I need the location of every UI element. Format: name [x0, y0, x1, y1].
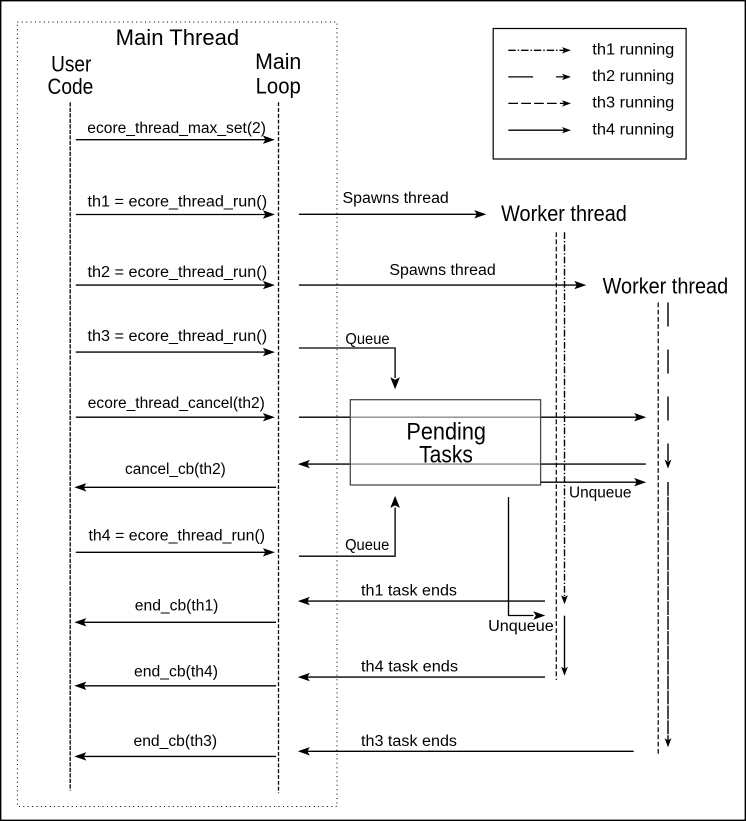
svg-text:th4 running: th4 running	[592, 122, 674, 139]
svg-text:th2 running: th2 running	[592, 68, 674, 85]
svg-text:Spawns thread: Spawns thread	[389, 262, 495, 279]
svg-text:end_cb(th3): end_cb(th3)	[134, 733, 218, 750]
svg-text:th1 = ecore_thread_run(): th1 = ecore_thread_run()	[88, 193, 268, 210]
svg-text:th3 running: th3 running	[592, 95, 674, 112]
svg-text:Tasks: Tasks	[419, 441, 473, 468]
svg-text:Unqueue: Unqueue	[569, 484, 632, 501]
svg-text:th4 task ends: th4 task ends	[361, 659, 458, 676]
svg-text:th3 = ecore_thread_run(): th3 = ecore_thread_run()	[88, 328, 268, 345]
svg-text:th1 running: th1 running	[592, 42, 674, 59]
svg-text:Queue: Queue	[345, 331, 389, 348]
svg-text:th4 = ecore_thread_run(): th4 = ecore_thread_run()	[89, 528, 266, 545]
svg-text:User: User	[51, 51, 91, 76]
svg-text:Code: Code	[48, 74, 94, 99]
svg-text:th1 task ends: th1 task ends	[361, 583, 457, 600]
svg-text:Worker thread: Worker thread	[501, 201, 627, 226]
svg-text:Main: Main	[255, 49, 301, 74]
svg-text:Loop: Loop	[256, 74, 301, 99]
svg-text:end_cb(th4): end_cb(th4)	[134, 663, 218, 680]
svg-text:cancel_cb(th2): cancel_cb(th2)	[125, 461, 226, 478]
svg-text:ecore_thread_cancel(th2): ecore_thread_cancel(th2)	[88, 395, 265, 412]
svg-text:th2 = ecore_thread_run(): th2 = ecore_thread_run()	[88, 264, 268, 281]
svg-text:ecore_thread_max_set(2): ecore_thread_max_set(2)	[87, 120, 266, 137]
svg-text:Spawns thread: Spawns thread	[343, 190, 449, 207]
svg-text:end_cb(th1): end_cb(th1)	[135, 598, 219, 615]
svg-text:Unqueue: Unqueue	[488, 618, 554, 635]
svg-text:th3 task ends: th3 task ends	[361, 733, 457, 750]
svg-text:Main Thread: Main Thread	[116, 25, 240, 50]
svg-text:Queue: Queue	[345, 537, 389, 554]
svg-text:Worker thread: Worker thread	[603, 274, 729, 299]
